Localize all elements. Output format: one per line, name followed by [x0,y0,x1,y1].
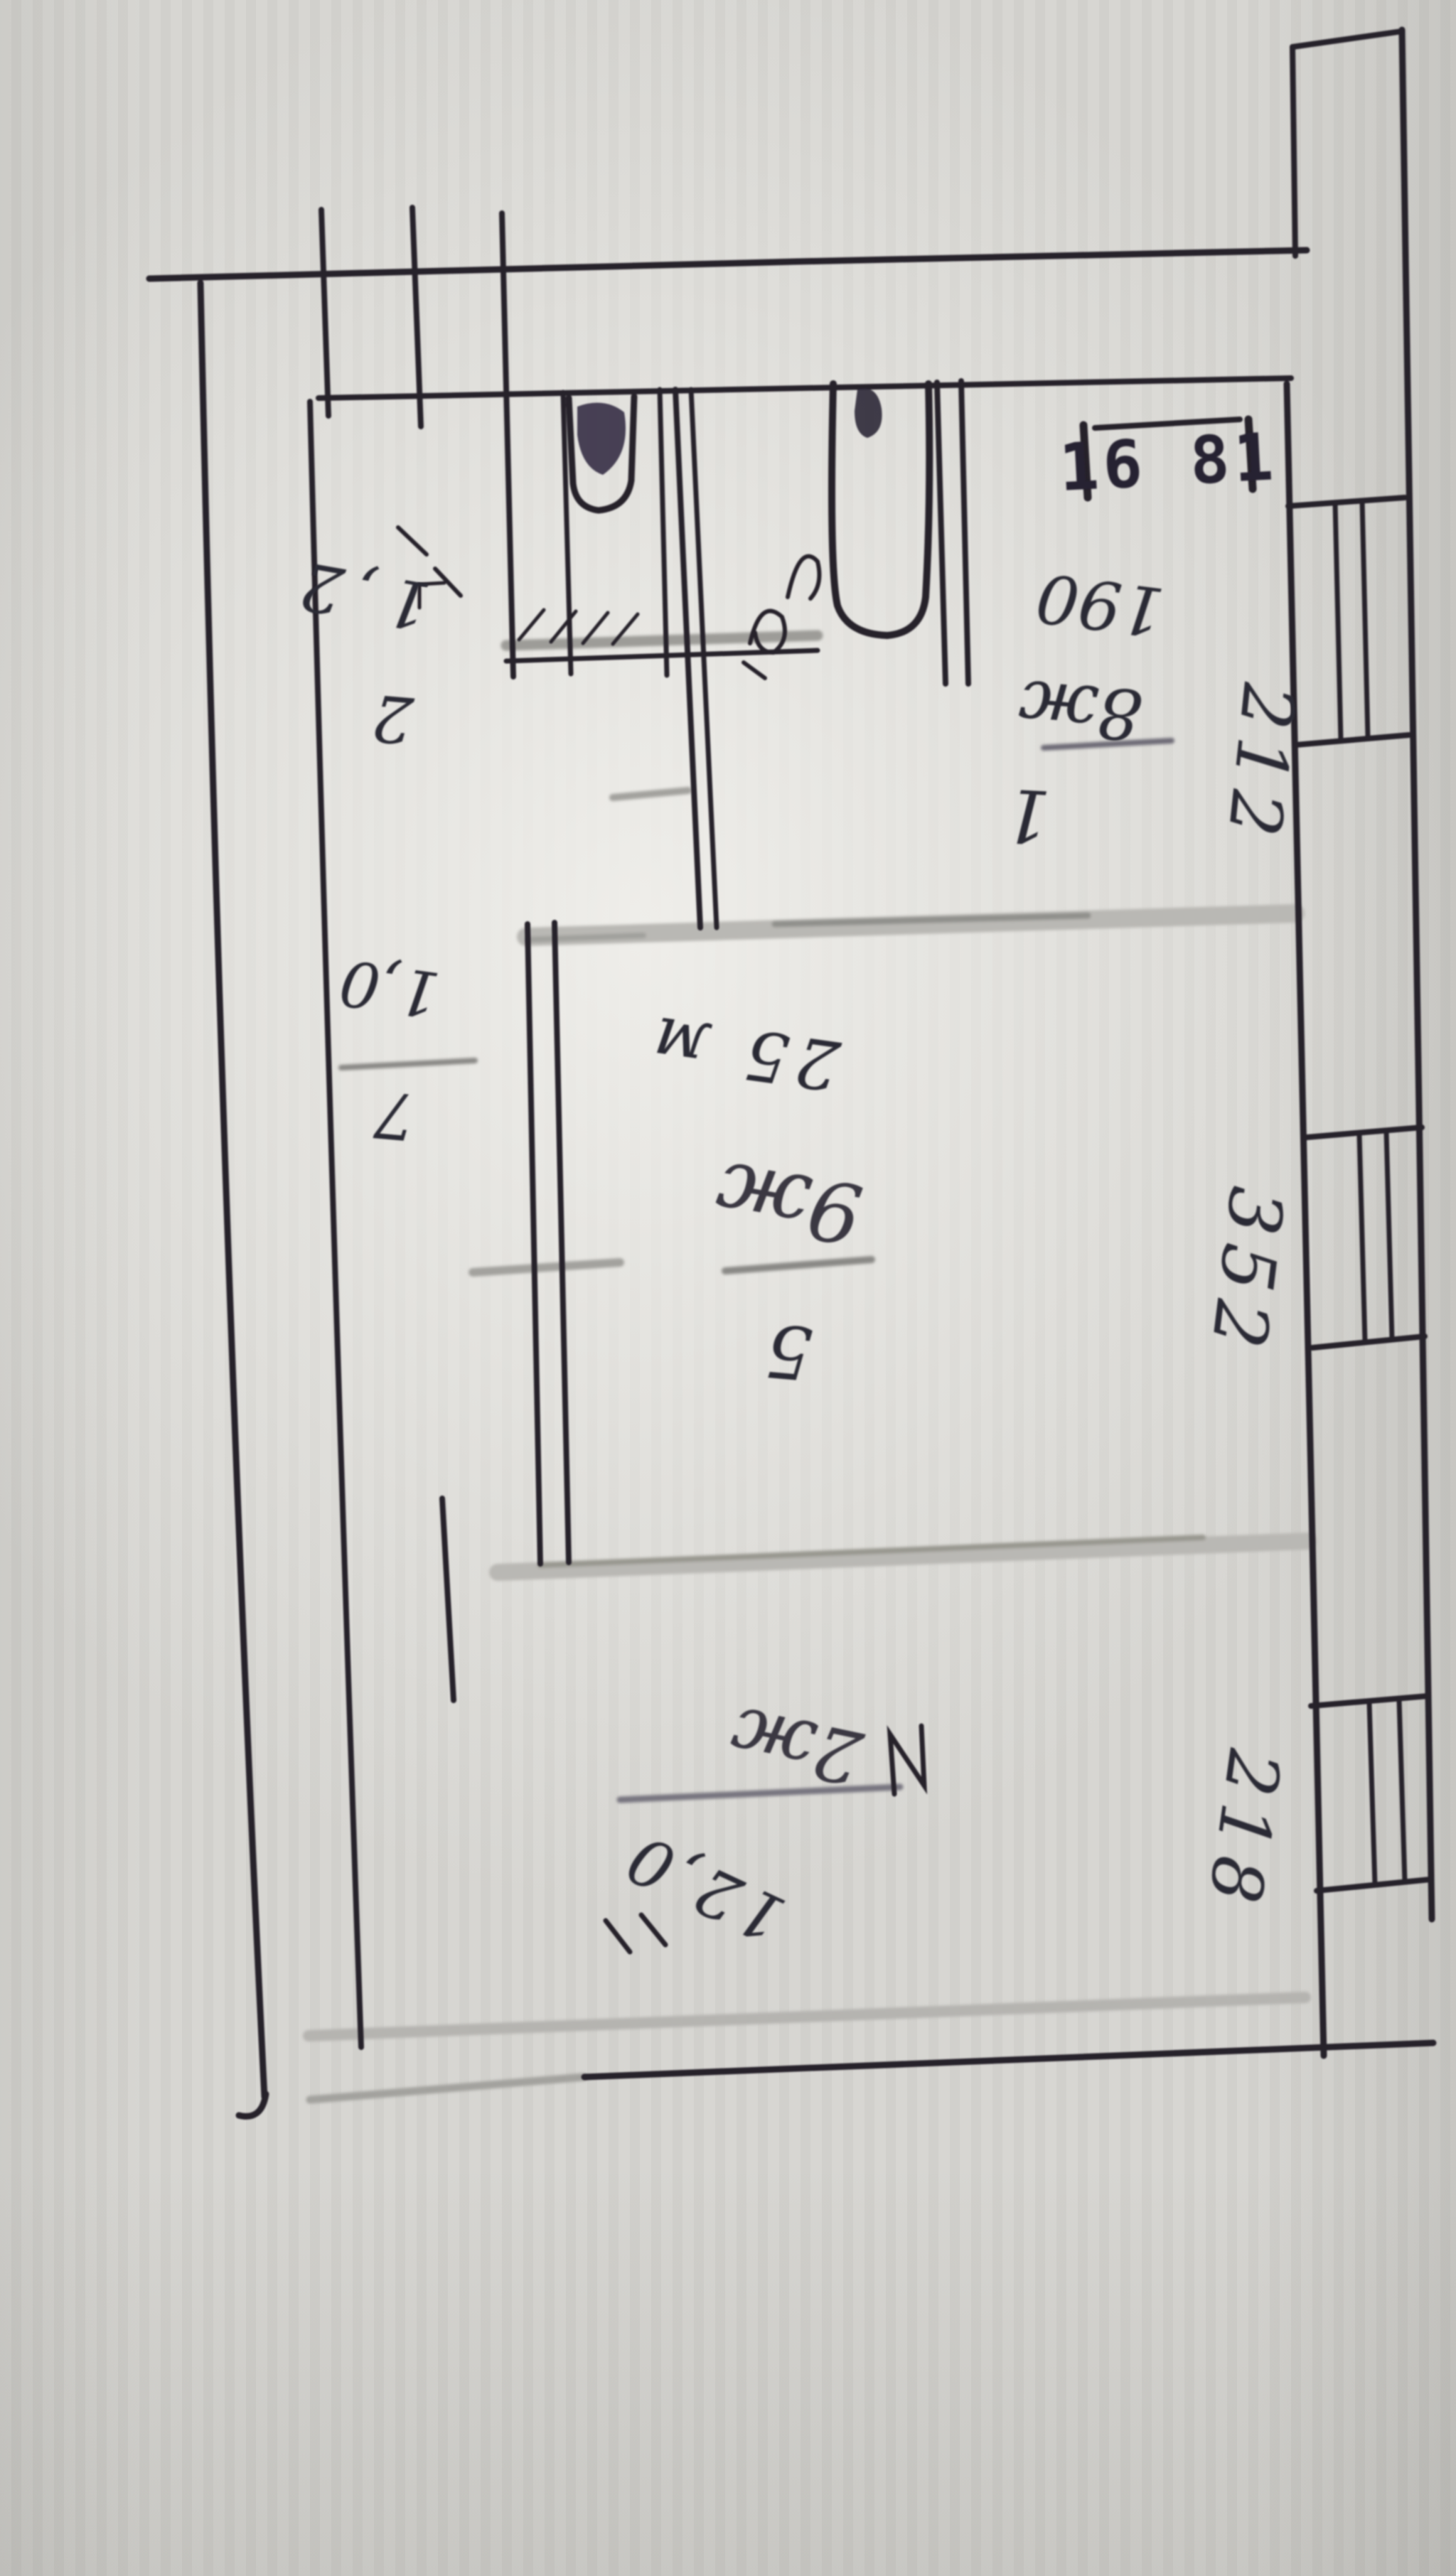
left-wall-outer [200,283,264,2097]
chimney-duct [1292,31,1402,256]
window-bottom-right [1311,1696,1430,1891]
hall-room5-partition-b [555,923,569,1562]
window-mullion [1362,501,1368,738]
window-mullion [1369,1703,1375,1885]
bottom-wall-ink [584,2043,1433,2077]
right-wall-outer [1402,30,1432,1919]
stray-dash-1 [606,1921,630,1952]
bottom-wall-upper-line [309,1997,1305,2036]
bathtub-tap-blob [855,389,882,438]
bathroom-block [502,213,968,684]
room1-area-label: 8ж [1015,664,1145,756]
window-rung [1307,1127,1422,1137]
window-rung [1295,735,1409,745]
window-rung [1288,498,1405,506]
bottom-room-size-label: 12,0 [611,1818,796,1958]
bottom-room-label-underline [620,1787,900,1800]
fixture-scribble-2 [788,557,819,599]
top-wall-inner [318,378,1291,398]
lower-divider-band [498,1541,1308,1572]
toilet-fill [577,403,626,475]
tick-1 [321,210,328,416]
bath-partition-left [502,213,513,677]
hatch-1 [519,610,544,640]
hall-room5-partition-a [528,924,540,1564]
room5-size-label: 25 м [641,1000,845,1106]
dimension-lower-right: 218 [1192,1744,1297,1916]
window-mullion [1399,1700,1405,1882]
bath-line-2 [660,390,667,675]
bottom-room-area-label: 2ж [723,1690,870,1802]
bath-partition-right-b [961,381,968,684]
door-mark-1 [398,527,427,554]
window-mullion [1386,1132,1392,1339]
closet-number: 7 [371,1076,419,1154]
window-rung [1312,1336,1425,1348]
window-mullion [1359,1134,1365,1342]
room2-area-label: 1,2 [282,544,436,644]
bottom-wall-lower-line-pencil [310,2077,584,2100]
room5-number: 5 [762,1306,815,1395]
closet-label-underline [341,1061,475,1068]
window-mullion [1335,503,1341,741]
bath-partition-right-a [937,382,946,684]
opening-tick-room1 [613,790,688,798]
lower-divider-tick [442,1498,454,1700]
chimney-left-wall [1292,47,1295,256]
fixture-scribble-3 [744,662,765,678]
date-stamp: 16 81 [1057,419,1279,506]
opening-tick-room5 [473,1262,620,1272]
room2-number: 2 [369,680,417,758]
dimension-middle-right: 352 [1194,1182,1300,1363]
closet-area-label: 1,0 [335,945,444,1031]
scanned-floor-plan-page: 16 81 190 8ж 1 1,2 2 1,0 7 25 м 9ж 5 2ж … [0,0,1456,2576]
stray-mark-zigzag [890,1726,924,1794]
window-middle-right [1307,1127,1425,1348]
room5-area-label: 9ж [709,1142,869,1262]
chimney-top-wall [1292,31,1402,47]
stray-dash-2 [641,1915,665,1945]
room1-width-label: 190 [1032,557,1168,650]
left-wall-inner [310,402,361,2047]
floor-plan-svg: 16 81 190 8ж 1 1,2 2 1,0 7 25 м 9ж 5 2ж … [0,0,1456,2576]
dimension-upper-right: 212 [1211,679,1310,849]
room1-number: 1 [1002,771,1052,858]
